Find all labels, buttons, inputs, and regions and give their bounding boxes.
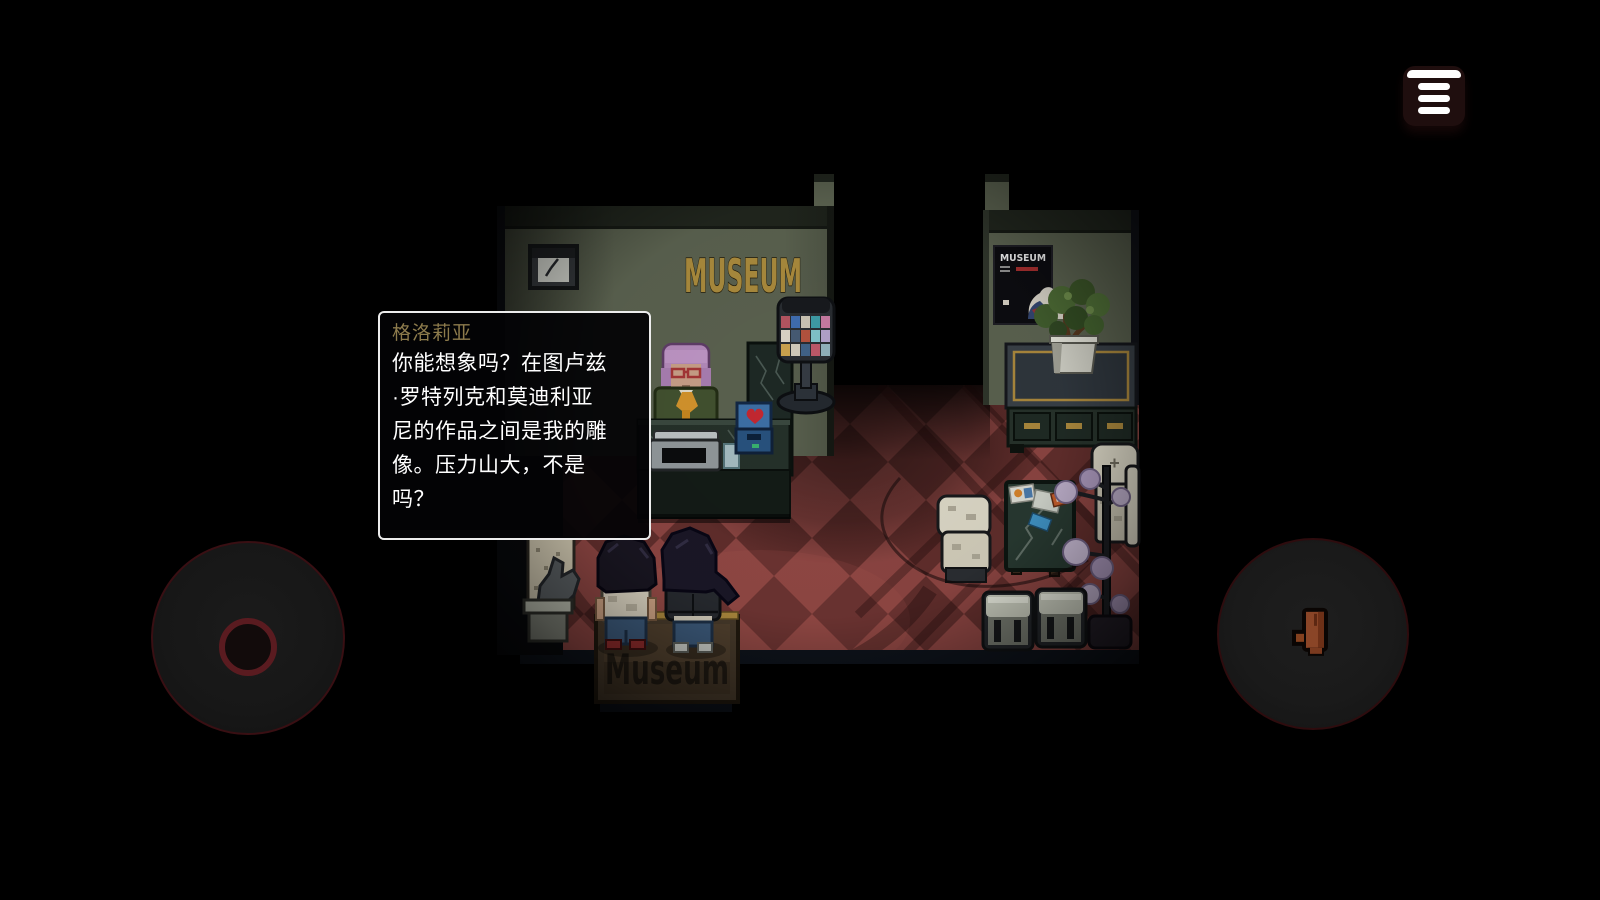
dialog-text-line: ·罗特列克和莫迪利亚 <box>392 381 637 415</box>
hamburger-menu-icon <box>1403 66 1465 126</box>
hand-glove-icon <box>1284 604 1342 662</box>
joystick-knob[interactable] <box>219 618 277 676</box>
interact-button[interactable] <box>1217 538 1409 730</box>
dialog-text-line: 吗？ <box>392 483 637 517</box>
menu-button[interactable] <box>1403 66 1465 126</box>
game-scene[interactable]: MUSEUM <box>0 0 1600 900</box>
dialog-text-line: 像。压力山大，不是 <box>392 449 637 483</box>
dialog-text-line: 尼的作品之间是我的雕 <box>392 415 637 449</box>
virtual-joystick[interactable] <box>151 541 345 735</box>
dialog-speaker-name: 格洛莉亚 <box>392 320 637 347</box>
dialog-text-line: 你能想象吗？在图卢兹 <box>392 347 637 381</box>
game-stage: MUSEUM <box>0 0 1600 900</box>
dialog-box[interactable]: 格洛莉亚 你能想象吗？在图卢兹 ·罗特列克和莫迪利亚 尼的作品之间是我的雕 像。… <box>378 311 651 540</box>
